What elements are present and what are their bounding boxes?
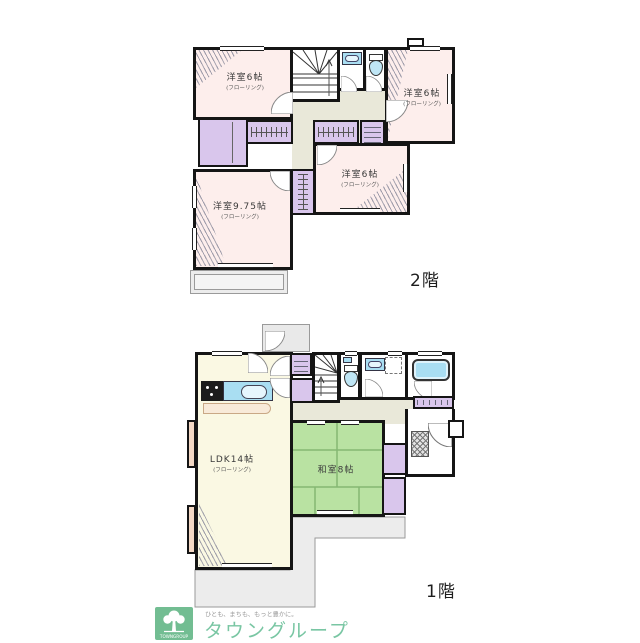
door-arc bbox=[248, 353, 268, 373]
balcony-2f-inner bbox=[194, 274, 284, 290]
window bbox=[340, 208, 380, 213]
shelf-lines-icon bbox=[417, 400, 450, 405]
room-name: 洋室6帖 bbox=[342, 170, 379, 180]
bathroom-1f bbox=[405, 352, 455, 400]
logo-brand-text: タウングループ bbox=[204, 616, 350, 643]
door-arc bbox=[365, 379, 383, 397]
washer-space bbox=[385, 357, 402, 374]
closet-washitsu-a bbox=[382, 443, 407, 475]
hand-wash-sink bbox=[343, 357, 352, 363]
window bbox=[218, 263, 273, 268]
window bbox=[192, 228, 197, 250]
room-name: 洋室6帖 bbox=[227, 73, 264, 83]
window bbox=[222, 563, 272, 568]
walk-in-closet-2f bbox=[198, 118, 248, 167]
porch-top bbox=[262, 324, 310, 352]
vanity-sink-2f bbox=[342, 52, 362, 65]
slope-hatch bbox=[199, 503, 229, 566]
floor-label-2f: 2階 bbox=[410, 266, 440, 291]
door-arc bbox=[341, 76, 357, 92]
shelf-lines-icon bbox=[364, 124, 381, 143]
floorplan-page: { "palette": { "wall": "#151515", "room_… bbox=[0, 0, 640, 640]
room-name: 洋室9.75帖 bbox=[213, 202, 267, 212]
room-label-western-6-ne: 洋室6帖 (フローリング) bbox=[391, 83, 452, 109]
toilet-bowl bbox=[344, 371, 358, 387]
window bbox=[403, 164, 408, 192]
balcony-2f bbox=[190, 270, 288, 294]
bay-window-lower bbox=[187, 505, 196, 554]
kitchen-unit bbox=[201, 381, 273, 401]
room-name: 洋室6帖 bbox=[404, 89, 441, 99]
town-group-mark-icon: TOWNGROUP bbox=[155, 607, 193, 640]
vanity-sink-1f bbox=[365, 358, 385, 371]
town-group-logo: TOWNGROUP ひとも、まちも、もっと豊かに。 タウングループ bbox=[155, 606, 455, 640]
closet-divider bbox=[232, 122, 233, 163]
stove-icon bbox=[201, 381, 223, 401]
counter-outline bbox=[203, 403, 271, 414]
room-label-western-6-mid: 洋室6帖 (フローリング) bbox=[329, 164, 390, 190]
stairs-icon bbox=[293, 50, 337, 99]
window bbox=[317, 510, 353, 515]
room-name: LDK14帖 bbox=[210, 455, 254, 465]
window bbox=[418, 351, 442, 356]
room-sub: (フローリング) bbox=[221, 214, 259, 220]
window bbox=[192, 186, 197, 208]
sliding-door bbox=[341, 420, 359, 425]
room-label-ldk: LDK14帖 (フローリング) bbox=[201, 449, 262, 475]
entrance-porch-marker bbox=[448, 420, 464, 438]
window bbox=[212, 351, 242, 356]
room-sub: (フローリング) bbox=[403, 101, 441, 107]
shelf-lines-icon bbox=[294, 357, 308, 372]
room-sub: (フローリング) bbox=[213, 467, 251, 473]
kitchen-sink bbox=[241, 385, 267, 399]
sink-bowl bbox=[368, 361, 382, 368]
shoe-cabinet bbox=[413, 396, 454, 409]
sliding-door bbox=[307, 420, 325, 425]
genkan-step bbox=[411, 431, 429, 457]
bay-window-upper bbox=[187, 420, 196, 468]
closet-washitsu-b bbox=[382, 477, 406, 515]
room-label-washitsu: 和室8帖 bbox=[318, 460, 355, 477]
logo-mark-text: TOWNGROUP bbox=[159, 634, 189, 639]
window bbox=[345, 351, 357, 356]
floor-plan-2f: 洋室6帖 (フローリング) 洋室6帖 (フローリング) 洋室6帖 (フローリング… bbox=[186, 44, 482, 304]
washroom-1f bbox=[359, 352, 408, 400]
door-arc bbox=[270, 378, 290, 398]
room-label-western-975: 洋室9.75帖 (フローリング) bbox=[209, 196, 270, 222]
hanger-pipe-icon bbox=[251, 127, 288, 137]
kitchen-counter bbox=[223, 381, 273, 401]
stairs-2f bbox=[290, 47, 340, 102]
closet-stairs-a bbox=[290, 353, 312, 376]
hanger-pipe-icon bbox=[318, 127, 354, 137]
window bbox=[410, 46, 440, 51]
room-sub: (フローリング) bbox=[341, 182, 379, 188]
room-name: 和室8帖 bbox=[318, 466, 355, 476]
window bbox=[220, 46, 264, 51]
hanger-pipe-icon bbox=[298, 174, 308, 210]
sink-bowl bbox=[345, 55, 359, 62]
door-arc bbox=[366, 76, 382, 92]
stairs-1f bbox=[312, 352, 340, 403]
bathtub bbox=[412, 359, 450, 381]
closet-hanger-2f-a bbox=[246, 120, 293, 144]
window bbox=[388, 351, 402, 356]
door-arc bbox=[317, 145, 337, 165]
door-arc bbox=[271, 92, 293, 114]
door-arc bbox=[270, 356, 290, 376]
floor-label-1f: 1階 bbox=[426, 577, 456, 602]
door-arc bbox=[270, 171, 290, 191]
closet-hanger-2f-b bbox=[313, 120, 359, 144]
toilet-room-1f bbox=[338, 352, 361, 400]
burner-dots bbox=[206, 386, 209, 389]
room-label-western-6-nw: 洋室6帖 (フローリング) bbox=[214, 67, 275, 93]
toilet-bowl bbox=[369, 60, 383, 76]
door-arc bbox=[265, 331, 285, 351]
room-sub: (フローリング) bbox=[226, 85, 264, 91]
stairs-icon bbox=[315, 355, 337, 400]
